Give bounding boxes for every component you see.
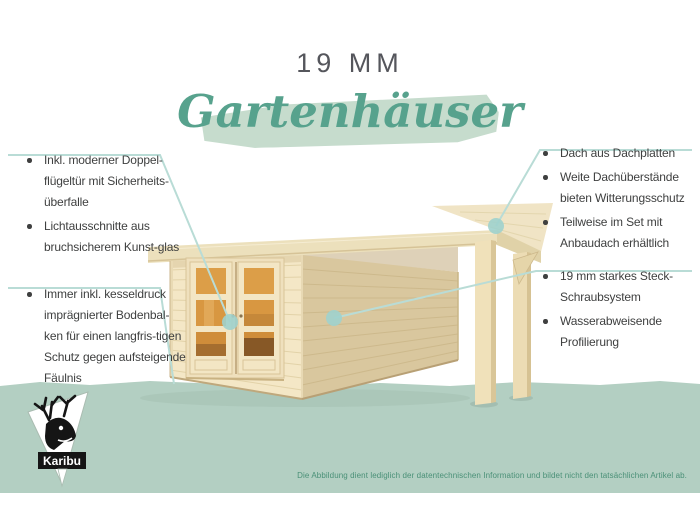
product-infographic-page: 19 MM Gartenhäuser [0, 0, 700, 525]
roof-callout-dot [488, 218, 504, 234]
disclaimer-text: Die Abbildung dient lediglich der datent… [297, 471, 687, 480]
callout-right-top: Dach aus Dachplatten Weite Dachüberständ… [538, 143, 699, 257]
feature-item: Lichtausschnitte aus bruchsicherem Kunst… [22, 216, 186, 258]
logo-label: Karibu [43, 454, 81, 468]
page-subtitle: Gartenhäuser [0, 85, 700, 138]
page-title: 19 MM [0, 48, 700, 79]
canopy-posts [470, 240, 538, 408]
karibu-logo: Karibu [22, 388, 104, 492]
door-callout-dot [222, 314, 238, 330]
feature-item: Weite Dachüberstände bieten Witterungssc… [538, 167, 699, 209]
feature-item: Inkl. moderner Doppel-flügeltür mit Sich… [22, 150, 186, 213]
wall-callout-dot [326, 310, 342, 326]
feature-item: 19 mm starkes Steck-Schraubsystem [538, 266, 699, 308]
feature-item: Immer inkl. kesseldruck imprägnierter Bo… [22, 284, 186, 389]
feature-item: Wasserabweisende Profilierung [538, 311, 699, 353]
callout-left-bottom: Immer inkl. kesseldruck imprägnierter Bo… [22, 284, 186, 392]
feature-item: Teilweise im Set mit Anbaudach erhältlic… [538, 212, 699, 254]
callout-right-bottom: 19 mm starkes Steck-Schraubsystem Wasser… [538, 266, 699, 356]
canopy-front-post [475, 240, 491, 405]
garden-shed [148, 203, 553, 408]
callout-left-top: Inkl. moderner Doppel-flügeltür mit Sich… [22, 150, 186, 261]
feature-item: Dach aus Dachplatten [538, 143, 699, 164]
